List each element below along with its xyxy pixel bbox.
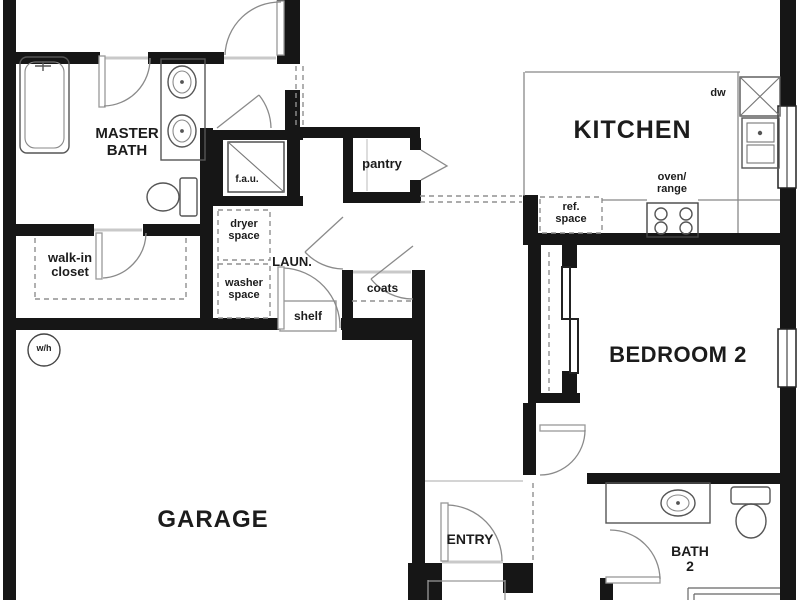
label-line: 2 bbox=[659, 559, 721, 574]
wall-segment bbox=[410, 138, 421, 150]
label-line: ref. bbox=[540, 201, 602, 213]
wall-segment bbox=[200, 128, 213, 330]
label-bath-2: BATH 2 bbox=[659, 544, 721, 575]
kitchen-ceiling-dashes bbox=[420, 196, 522, 202]
wall-segment bbox=[277, 0, 300, 64]
oven-range-burners bbox=[647, 203, 698, 237]
label-line: walk-in bbox=[33, 251, 107, 265]
closet-bypass-door-panel bbox=[561, 266, 571, 320]
label-line: BATH bbox=[82, 143, 172, 160]
wall-segment bbox=[562, 371, 577, 395]
label-line: MASTER bbox=[82, 126, 172, 143]
label-oven-range: oven/ range bbox=[643, 171, 701, 195]
label-pantry: pantry bbox=[351, 157, 413, 171]
pantry-door bbox=[421, 150, 447, 180]
wall-segment bbox=[300, 127, 420, 138]
wall-segment bbox=[562, 245, 577, 268]
bath2-vanity-sink bbox=[606, 483, 710, 523]
label-washer-space: washer space bbox=[218, 277, 270, 301]
wall-segment bbox=[587, 473, 795, 484]
label-line: BATH bbox=[659, 544, 721, 559]
label-laundry: LAUN. bbox=[266, 255, 318, 269]
wall-segment bbox=[213, 196, 303, 206]
wall-segment bbox=[343, 192, 421, 203]
bathtub bbox=[20, 57, 69, 153]
label-kitchen: KITCHEN bbox=[555, 117, 710, 145]
label-line: space bbox=[540, 213, 602, 225]
label-fau: f.a.u. bbox=[224, 174, 270, 185]
floor-plan: MASTER BATH walk-in closet LAUN. dryer s… bbox=[0, 0, 800, 600]
wall-segment bbox=[523, 195, 538, 245]
label-line: range bbox=[643, 183, 701, 195]
bedroom2-door bbox=[540, 425, 585, 475]
wall-segment bbox=[780, 386, 796, 473]
wall-segment bbox=[16, 318, 279, 330]
label-shelf: shelf bbox=[282, 310, 334, 323]
label-line: dryer bbox=[218, 218, 270, 230]
wall-segment bbox=[16, 224, 94, 236]
label-entry: ENTRY bbox=[434, 532, 506, 547]
wall-segment bbox=[780, 187, 796, 330]
master-bedroom-door bbox=[225, 1, 284, 55]
label-master-bath: MASTER BATH bbox=[82, 126, 172, 159]
wall-segment bbox=[16, 52, 100, 64]
label-coats: coats bbox=[355, 282, 410, 295]
closet-bypass-door-panel bbox=[569, 318, 579, 374]
label-garage: GARAGE bbox=[138, 507, 288, 533]
floor-plan-linework bbox=[0, 0, 800, 600]
wall-segment bbox=[213, 130, 303, 140]
wall-segment bbox=[3, 0, 16, 600]
wall-segment bbox=[213, 130, 223, 206]
master-bath-door bbox=[99, 56, 150, 107]
label-bedroom-2: BEDROOM 2 bbox=[588, 343, 768, 367]
bath2-toilet bbox=[731, 487, 770, 538]
dishwasher-box bbox=[740, 77, 780, 116]
kitchen-window bbox=[778, 106, 796, 188]
label-line: space bbox=[218, 230, 270, 242]
wall-segment bbox=[780, 473, 796, 600]
fau-closet-door bbox=[217, 95, 271, 128]
wall-segment bbox=[148, 52, 224, 64]
wall-segment bbox=[341, 318, 425, 330]
label-line: closet bbox=[33, 265, 107, 279]
label-line: washer bbox=[218, 277, 270, 289]
label-ref-space: ref. space bbox=[540, 201, 602, 225]
label-dishwasher: dw bbox=[700, 87, 736, 99]
label-walkin-closet: walk-in closet bbox=[33, 251, 107, 280]
wall-segment bbox=[503, 563, 533, 593]
wall-segment bbox=[780, 0, 796, 107]
wall-segment bbox=[528, 245, 541, 403]
bath2-door bbox=[606, 530, 660, 583]
bedroom2-window bbox=[778, 329, 796, 387]
wall-segment bbox=[523, 403, 536, 475]
bath2-tub-edge bbox=[688, 588, 780, 600]
master-toilet bbox=[147, 178, 197, 216]
wall-segment bbox=[600, 578, 613, 600]
wall-segment bbox=[408, 563, 442, 600]
label-water-heater: w/h bbox=[30, 344, 58, 354]
label-line: oven/ bbox=[643, 171, 701, 183]
label-dryer-space: dryer space bbox=[218, 218, 270, 242]
wall-segment bbox=[538, 233, 795, 245]
kitchen-sink bbox=[742, 118, 779, 168]
label-line: space bbox=[218, 289, 270, 301]
